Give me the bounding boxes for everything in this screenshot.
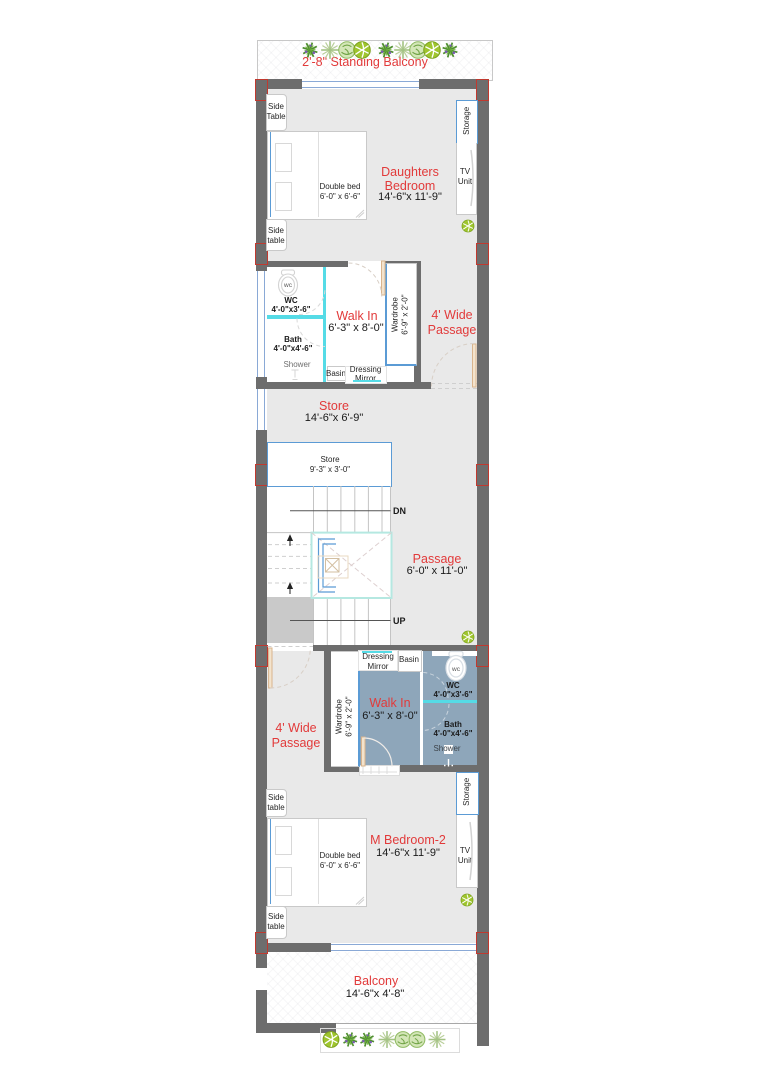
svg-text:wc: wc	[283, 282, 293, 289]
svg-text:wc: wc	[451, 666, 461, 673]
